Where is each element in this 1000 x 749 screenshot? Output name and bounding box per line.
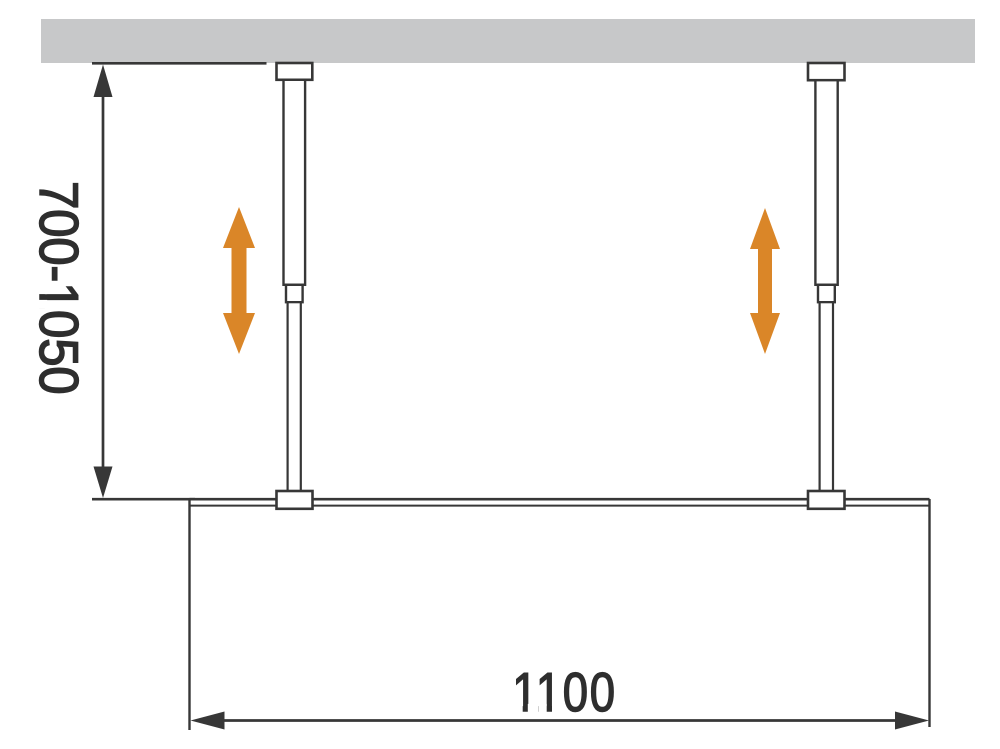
svg-text:1100: 1100 [512,661,616,723]
svg-text:700-1050: 700-1050 [28,181,89,394]
